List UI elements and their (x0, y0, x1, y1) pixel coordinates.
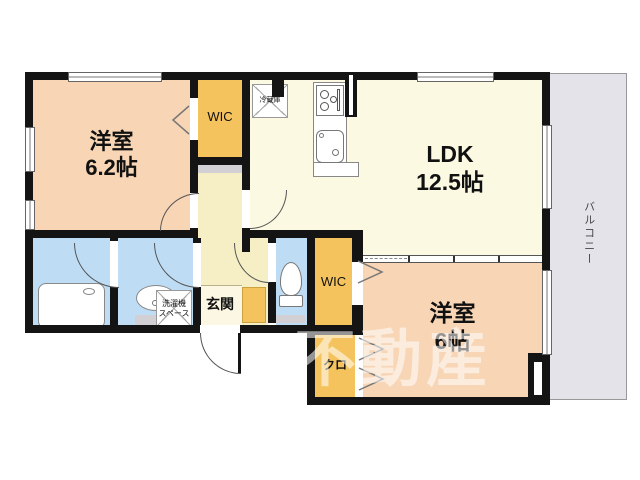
wic2-label: WIC (315, 274, 352, 290)
door-arc-entrance (200, 333, 241, 374)
ldk-name: LDK (426, 141, 473, 169)
folding-door-arrow-wic2-icon (356, 259, 384, 285)
window-bedroom2-balcony (542, 270, 552, 355)
window-bedroom1-top (68, 72, 162, 82)
opening-ldk-door (242, 190, 250, 228)
sink-faucet (319, 133, 324, 138)
wall-kitchen-stub (272, 72, 284, 97)
toilet-tank (279, 295, 303, 307)
stove-burner-1 (320, 90, 329, 99)
wic1-shelf (198, 165, 242, 173)
stove-burner-3 (330, 96, 337, 103)
balcony-label: バルコニー (577, 186, 599, 281)
toilet-bowl (280, 262, 302, 296)
stove-burner-2 (320, 102, 329, 111)
window-ldk-top (417, 72, 494, 82)
opening-entrance-door (200, 325, 240, 333)
wall-under-bedroom1 (25, 230, 198, 238)
entrance-door-panel (238, 333, 241, 373)
bedroom1-label: 洋室 6.2帖 (33, 122, 190, 188)
sliding-door-tick (498, 256, 500, 262)
laundry-space: 洗濯機 スペース (156, 290, 192, 327)
opening-toilet-door (268, 243, 276, 282)
wall-wic2-right-top (352, 230, 363, 262)
stove (316, 85, 344, 116)
toilet-icon (279, 260, 305, 310)
bedroom1-name: 洋室 (89, 129, 133, 155)
ldk-size: 12.5帖 (416, 169, 484, 197)
sliding-door-tick (408, 256, 410, 262)
watermark: 不動産 (268, 314, 518, 406)
window-ldk-balcony (542, 125, 552, 209)
pillar-window-slot (534, 362, 542, 395)
laundry-label-line2: スペース (158, 309, 189, 319)
stove-grill (337, 89, 340, 111)
kitchen-counter-base (313, 162, 359, 177)
sink-drain (332, 149, 339, 156)
shoe-cabinet (242, 287, 266, 323)
room-hallway (198, 173, 242, 285)
bedroom1-size: 6.2帖 (85, 155, 138, 181)
wic1-label: WIC (198, 108, 242, 126)
laundry-label: 洗濯機 スペース (157, 291, 191, 326)
sliding-door-ldk-bedroom2 (363, 255, 542, 263)
bathtub (38, 283, 105, 329)
bathtub-drain (83, 288, 95, 295)
sliding-door-tick (453, 256, 455, 262)
laundry-label-line1: 洗濯機 (162, 299, 186, 309)
floorplan: 洗濯機 スペース 冷蔵庫 (0, 0, 640, 480)
kitchen-side-slit (349, 75, 353, 115)
entrance-label: 玄関 (198, 295, 242, 313)
kitchen-sink (316, 130, 344, 163)
wall-ldk-south (242, 230, 363, 238)
window-bedroom1-left-2 (25, 200, 35, 230)
ldk-label: LDK 12.5帖 (363, 140, 537, 198)
